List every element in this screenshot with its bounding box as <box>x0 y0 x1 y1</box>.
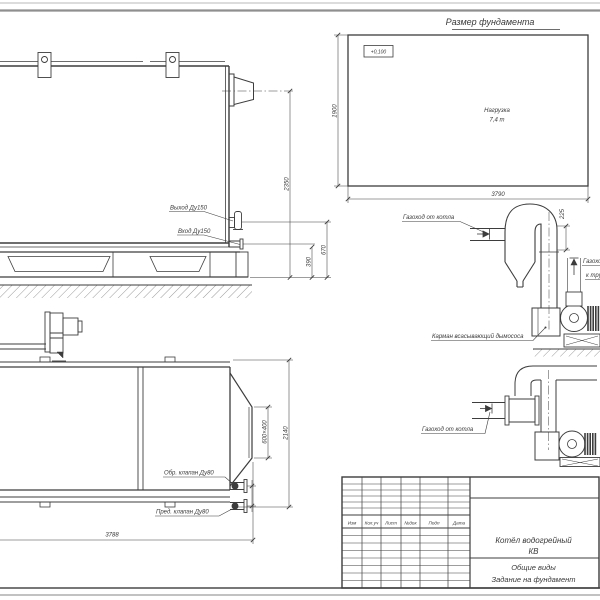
suction-pocket <box>532 308 560 336</box>
duct1-to-chimney-1: Газоход <box>583 259 600 265</box>
titleblock-doc-2: Задание на фундамент <box>491 575 575 584</box>
foundation-plan <box>334 30 588 204</box>
duct1-dim-offset: 225 <box>560 208 566 220</box>
foundation-elevation: +0,100 <box>371 50 387 56</box>
side-dim-total: 2350 <box>285 177 291 192</box>
titleblock-col-data: Дата <box>452 521 466 526</box>
duct1-to-chimney-2: к трубе <box>586 273 600 279</box>
titleblock-doc-1: Общие виды <box>511 563 556 572</box>
plan-dim-length: 3788 <box>105 533 119 539</box>
check-valve <box>230 480 247 493</box>
dim-225 <box>557 226 570 250</box>
dimension-ticks <box>250 33 590 542</box>
plan-safety-valve-label: Пред. клапан Ду80 <box>156 510 209 516</box>
titleblock-col-list: Лист <box>384 521 397 526</box>
sheet-frame <box>0 3 600 595</box>
burner-assembly <box>0 312 82 361</box>
foundation-load-1: Нагрузка <box>484 108 510 114</box>
titleblock-col-izm: Изм <box>348 521 357 526</box>
title-block <box>342 477 599 588</box>
plan-dim-width: 2140 <box>284 426 290 441</box>
titleblock-col-ndok: №док <box>404 521 417 526</box>
duct1-pocket-label: Карман всасывающий дымососа <box>432 333 524 340</box>
duct2-from-boiler-label: Газоход от котла <box>422 427 474 433</box>
foundation-title: Размер фундамента <box>446 17 535 27</box>
lifting-lugs <box>38 53 179 78</box>
boiler-side-view <box>0 53 331 299</box>
ground-line <box>0 285 252 298</box>
outlet-cone <box>230 373 252 486</box>
foundation-dim-height: 1900 <box>333 104 339 118</box>
side-dim-outlet: 670 <box>322 244 328 255</box>
smoke-exhauster-fan <box>561 258 600 347</box>
smoke-exhauster-fan-2 <box>559 431 600 467</box>
water-outlet-stub <box>229 212 331 230</box>
foundation-dimensions <box>334 35 588 203</box>
drawing-canvas: Выход Ду150 Вход Ду150 2350 670 390 Разм… <box>0 0 600 600</box>
side-dim-inlet: 390 <box>307 256 313 267</box>
safety-valve <box>230 500 247 513</box>
drawing-sheet: Выход Ду150 Вход Ду150 2350 670 390 Разм… <box>0 0 600 600</box>
base-frame <box>0 252 248 277</box>
foundation-dim-width: 3790 <box>491 192 505 198</box>
foundation-load-2: 7,4 т <box>489 118 504 124</box>
water-inlet-stub <box>229 239 315 249</box>
suction-pocket-2 <box>535 432 559 460</box>
flue-outlet <box>222 74 294 106</box>
titleblock-product-1: Котёл водогрейный <box>495 536 572 545</box>
side-inlet-label: Вход Ду150 <box>178 229 211 235</box>
titleblock-col-koluch: Кол.уч <box>365 521 379 526</box>
duct-detail-bottom <box>421 366 600 467</box>
flow-arrow-2 <box>480 404 492 414</box>
duct1-from-boiler-label: Газоход от котла <box>403 215 455 221</box>
titleblock-col-podp: Подп <box>429 521 440 526</box>
plan-dim-outlet: 600×400 <box>263 420 269 444</box>
titleblock-product-2: КВ <box>528 547 539 556</box>
plan-check-valve-label: Обр. клапан Ду80 <box>164 471 214 477</box>
side-view-dimensions <box>250 91 331 278</box>
boiler-plan-view <box>0 312 293 544</box>
side-outlet-label: Выход Ду150 <box>170 206 208 212</box>
